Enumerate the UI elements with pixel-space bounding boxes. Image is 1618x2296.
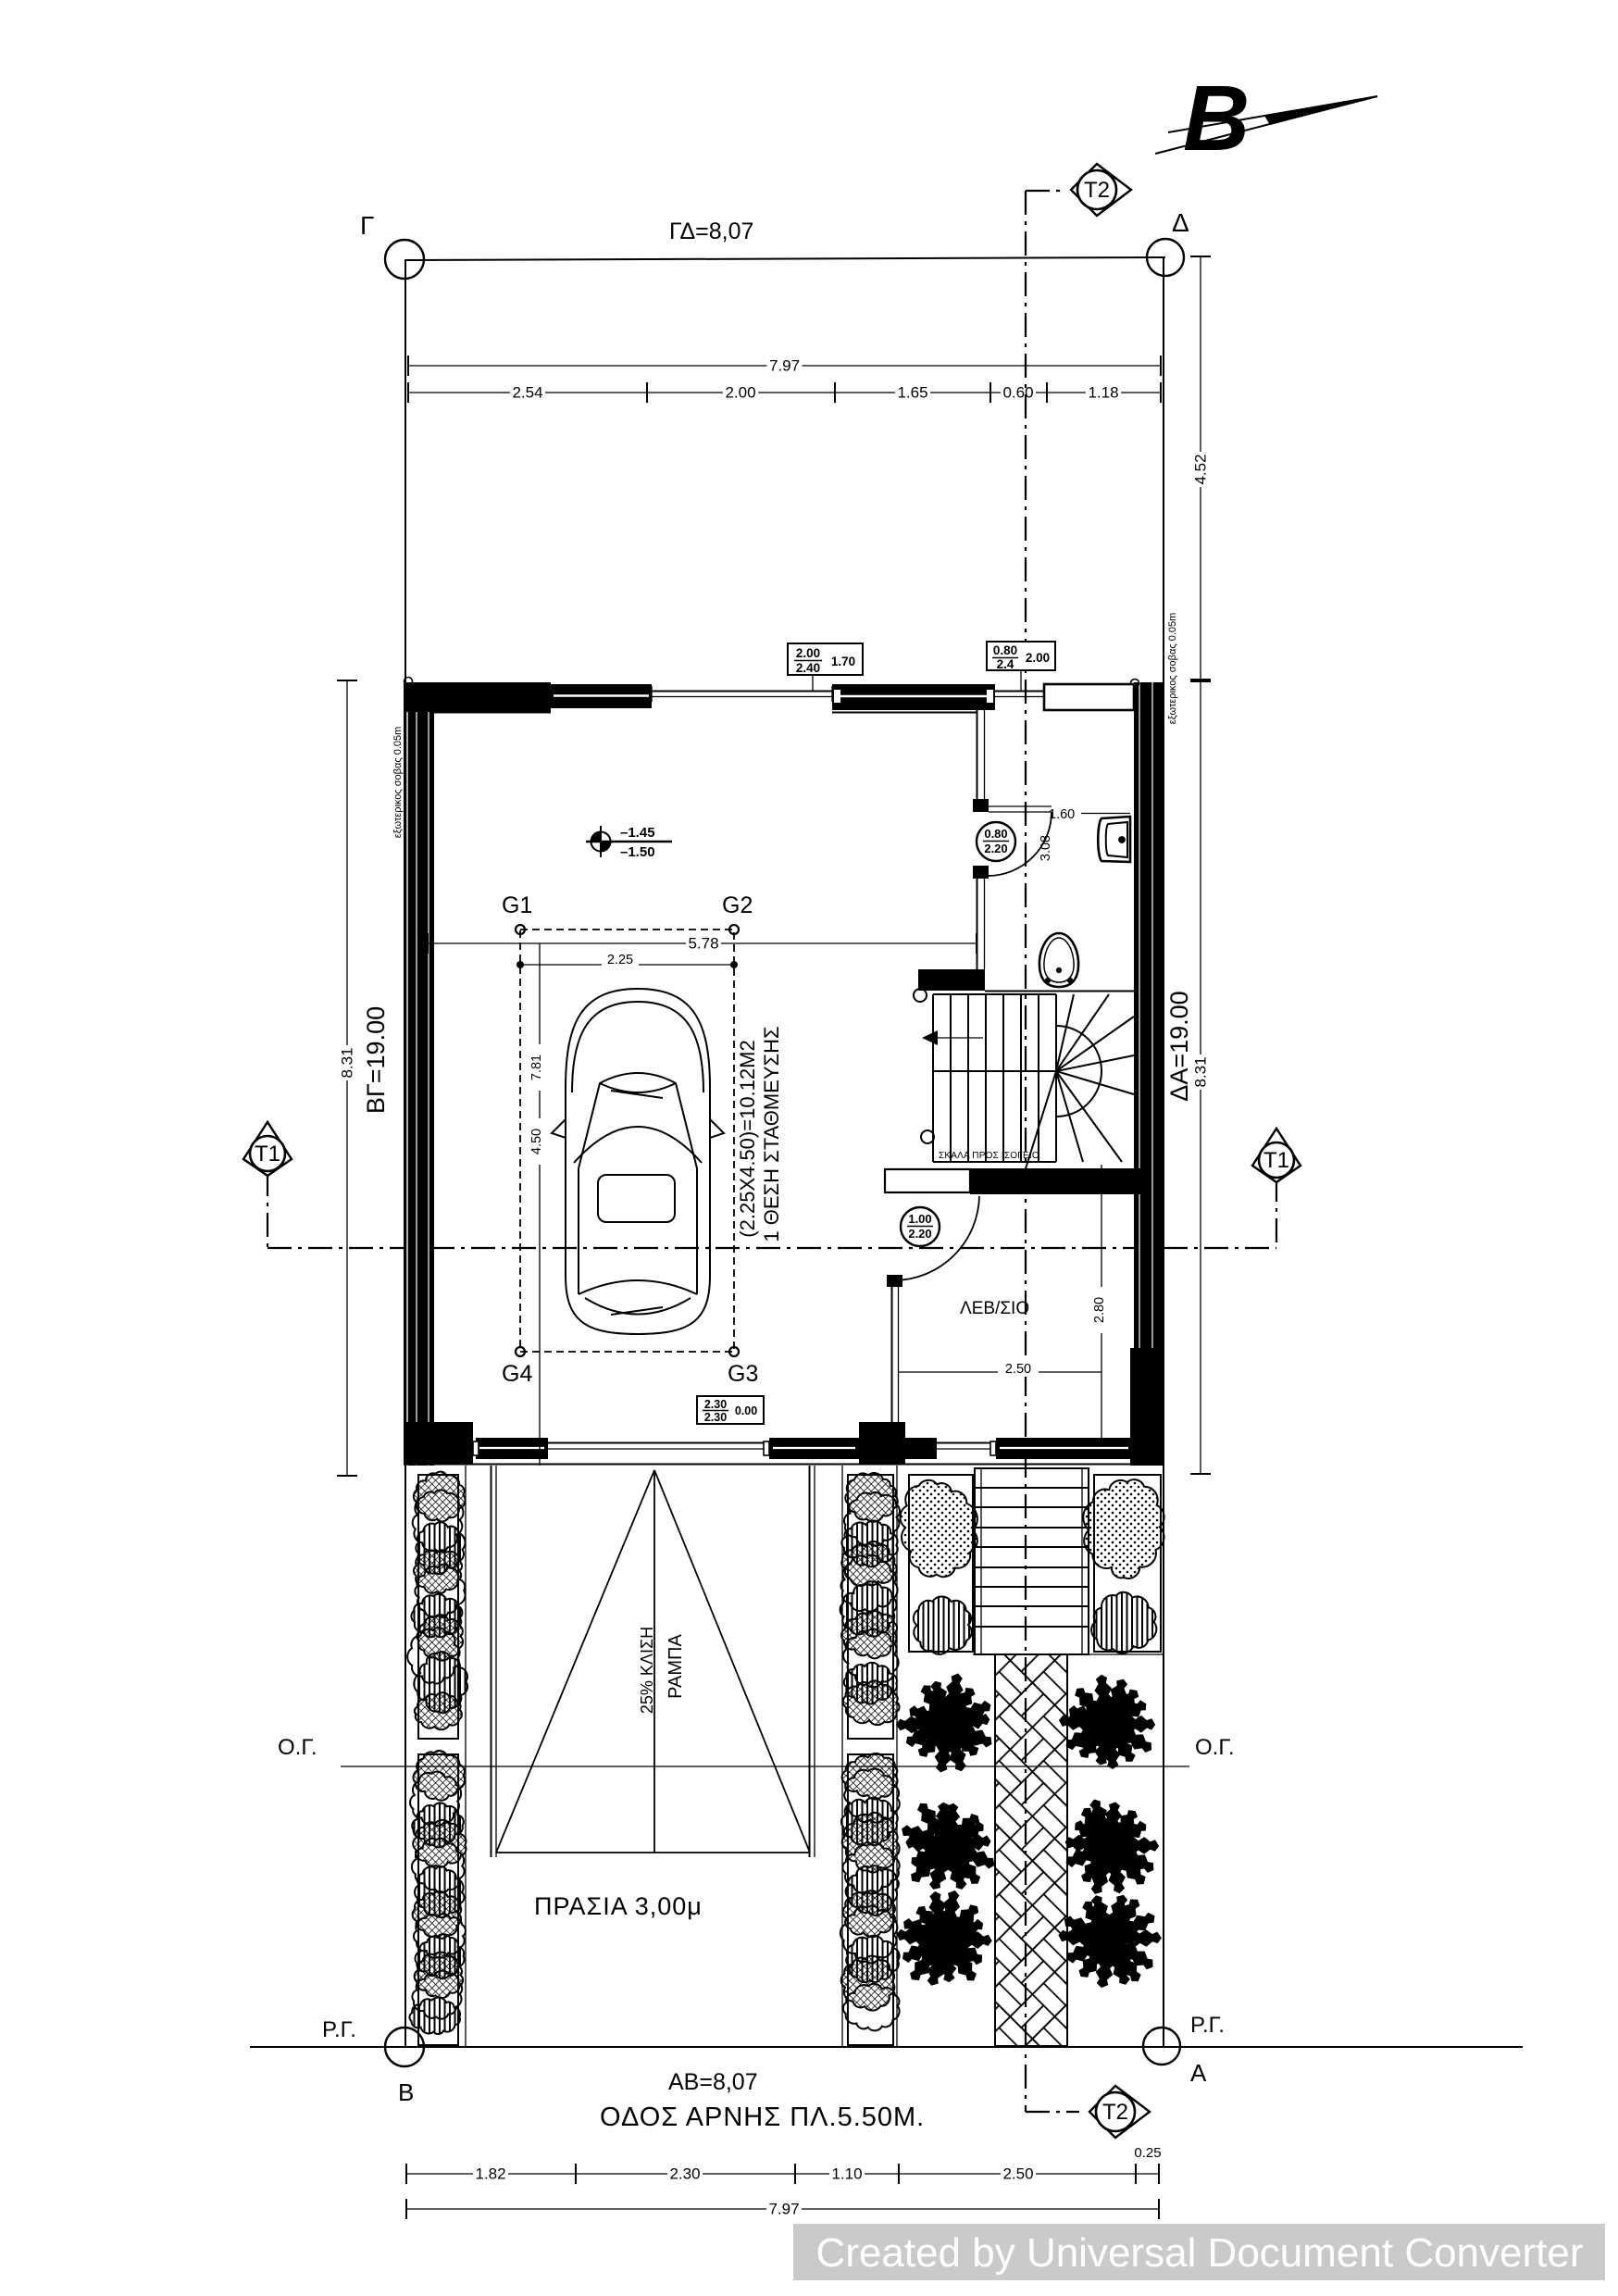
svg-text:0.25: 0.25 — [1134, 2145, 1161, 2161]
svg-text:εξωτερικος σοβας 0.05m: εξωτερικος σοβας 0.05m — [1167, 613, 1178, 725]
svg-text:B: B — [398, 2078, 414, 2106]
svg-text:5.78: 5.78 — [688, 934, 718, 952]
svg-text:T2: T2 — [1102, 2100, 1128, 2125]
svg-text:Ο.Γ.: Ο.Γ. — [278, 1735, 317, 1760]
svg-text:3.08: 3.08 — [1039, 835, 1053, 861]
svg-text:B: B — [1183, 67, 1250, 170]
svg-text:1.10: 1.10 — [831, 2165, 862, 2183]
svg-text:2.80: 2.80 — [1092, 1297, 1107, 1323]
svg-text:4.52: 4.52 — [1191, 454, 1209, 484]
svg-text:ΔΑ=19.00: ΔΑ=19.00 — [1165, 991, 1193, 1101]
svg-text:1.60: 1.60 — [1049, 807, 1075, 822]
svg-text:ΛΕΒ/ΣΙΟ: ΛΕΒ/ΣΙΟ — [960, 1299, 1029, 1318]
svg-text:2.00: 2.00 — [725, 384, 755, 402]
svg-text:G2: G2 — [722, 892, 753, 918]
svg-text:2.50: 2.50 — [1005, 1362, 1031, 1377]
svg-text:2.54: 2.54 — [512, 384, 542, 402]
svg-text:7.97: 7.97 — [768, 2200, 799, 2217]
svg-text:Ρ.Γ.: Ρ.Γ. — [322, 2017, 356, 2042]
svg-text:2.20: 2.20 — [908, 1227, 931, 1241]
svg-text:25% ΚΛΙΣΗ: 25% ΚΛΙΣΗ — [638, 1627, 656, 1714]
svg-text:–1.50: –1.50 — [620, 844, 655, 860]
svg-text:1.65: 1.65 — [897, 384, 927, 402]
svg-text:2.00: 2.00 — [1026, 651, 1050, 665]
svg-text:1.82: 1.82 — [475, 2165, 505, 2183]
svg-text:4.50: 4.50 — [529, 1129, 544, 1154]
svg-text:0.00: 0.00 — [735, 1404, 757, 1417]
svg-text:0.80: 0.80 — [993, 643, 1017, 657]
svg-text:2.40: 2.40 — [796, 661, 820, 675]
svg-text:1.70: 1.70 — [831, 655, 855, 668]
svg-text:2.4: 2.4 — [997, 657, 1014, 671]
svg-text:Δ: Δ — [1172, 208, 1189, 237]
svg-text:ΒΓ=19.00: ΒΓ=19.00 — [362, 1006, 390, 1114]
svg-text:Ο.Γ.: Ο.Γ. — [1195, 1735, 1235, 1760]
svg-text:1 ΘΕΣΗ ΣΤΑΘΜΕΥΣΗΣ: 1 ΘΕΣΗ ΣΤΑΘΜΕΥΣΗΣ — [760, 1026, 783, 1242]
svg-text:T2: T2 — [1084, 178, 1110, 203]
svg-text:Γ: Γ — [360, 211, 374, 240]
svg-text:2.30: 2.30 — [704, 1411, 727, 1424]
svg-text:8.31: 8.31 — [1191, 1056, 1209, 1087]
svg-text:0.60: 0.60 — [1002, 384, 1033, 402]
svg-text:ΡΑΜΠΑ: ΡΑΜΠΑ — [666, 1634, 686, 1699]
svg-text:ΟΔΟΣ ΑΡΝΗΣ ΠΛ.5.50Μ.: ΟΔΟΣ ΑΡΝΗΣ ΠΛ.5.50Μ. — [600, 2103, 925, 2132]
svg-text:ΓΔ=8,07: ΓΔ=8,07 — [669, 218, 753, 244]
svg-text:T1: T1 — [255, 1142, 280, 1167]
svg-text:–1.45: –1.45 — [620, 825, 655, 841]
svg-text:A: A — [1190, 2059, 1207, 2087]
svg-text:2.00: 2.00 — [796, 646, 820, 660]
svg-text:(2.25Χ4.50)=10.12Μ2: (2.25Χ4.50)=10.12Μ2 — [736, 1040, 759, 1237]
svg-text:8.31: 8.31 — [338, 1047, 355, 1078]
svg-text:1.00: 1.00 — [908, 1212, 931, 1226]
svg-text:ΣΚΑΛΑ ΠΡΟΣ ΙΣΟΓΕΙΟ: ΣΚΑΛΑ ΠΡΟΣ ΙΣΟΓΕΙΟ — [939, 1151, 1039, 1161]
svg-text:G4: G4 — [502, 1361, 532, 1387]
svg-text:εξωτερικος σοβας 0.05m: εξωτερικος σοβας 0.05m — [392, 727, 404, 839]
svg-text:ΠΡΑΣΙΑ 3,00μ: ΠΡΑΣΙΑ 3,00μ — [534, 1892, 703, 1920]
svg-text:0.80: 0.80 — [984, 827, 1007, 841]
svg-text:G1: G1 — [502, 892, 532, 918]
svg-text:7.81: 7.81 — [529, 1054, 544, 1080]
svg-text:2.30: 2.30 — [704, 1398, 727, 1411]
svg-text:G3: G3 — [728, 1361, 758, 1387]
svg-text:2.20: 2.20 — [984, 842, 1007, 855]
svg-text:T1: T1 — [1263, 1148, 1289, 1173]
svg-text:Created by Universal Document: Created by Universal Document Converter — [815, 2230, 1583, 2276]
svg-text:2.25: 2.25 — [607, 953, 633, 967]
svg-text:ΑΒ=8,07: ΑΒ=8,07 — [668, 2069, 758, 2095]
svg-text:Ρ.Γ.: Ρ.Γ. — [1190, 2013, 1225, 2038]
svg-text:7.97: 7.97 — [769, 356, 800, 374]
svg-text:2.30: 2.30 — [669, 2165, 700, 2183]
svg-text:2.50: 2.50 — [1002, 2165, 1033, 2183]
svg-text:1.18: 1.18 — [1088, 384, 1118, 402]
